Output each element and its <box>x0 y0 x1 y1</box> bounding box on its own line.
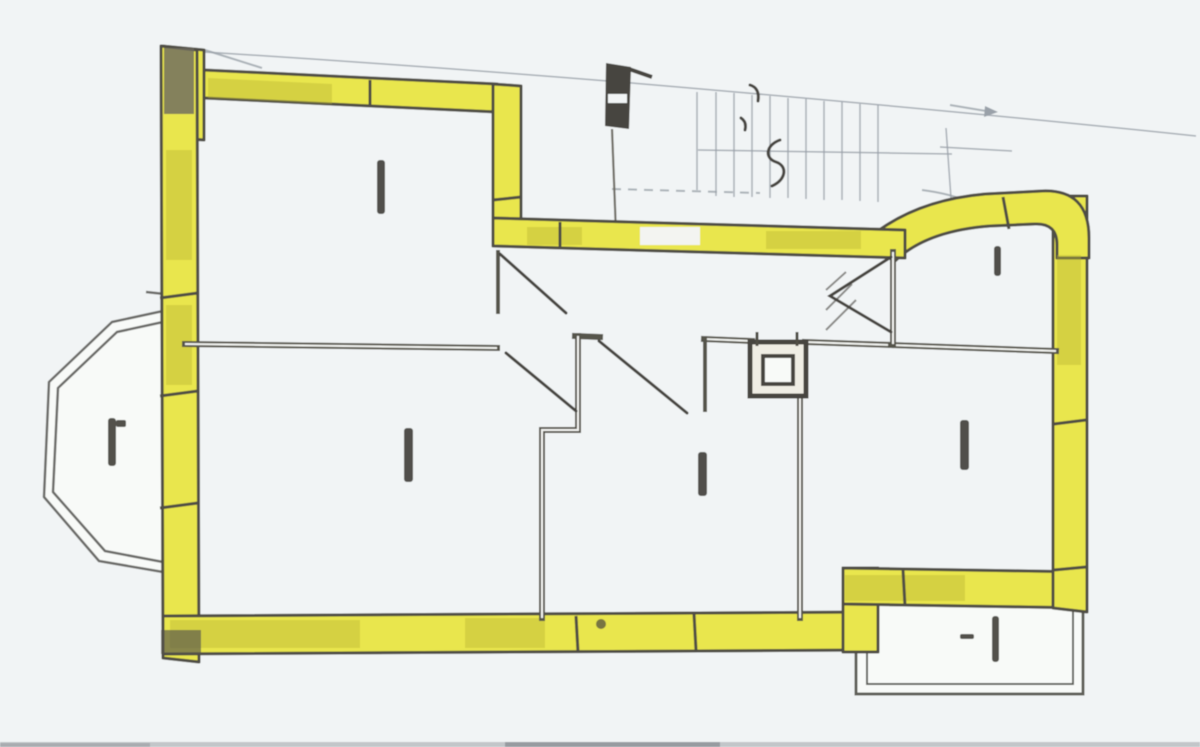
label-mark-balcony <box>992 616 999 662</box>
chimney-flue <box>750 332 806 396</box>
corner-dark-top-left <box>164 48 194 114</box>
label-mark-bay-2 <box>116 420 126 427</box>
label-mark-middle-left-room <box>404 428 413 482</box>
scan-edge <box>0 742 1200 747</box>
hallway-wall-opening <box>640 227 700 245</box>
scanned-floorplan-page <box>0 0 1200 747</box>
corner-dark-bottom-left <box>161 630 201 654</box>
label-mark-bay <box>108 418 116 466</box>
balcony-bottom-right <box>856 600 1083 694</box>
label-mark-right-room <box>960 420 969 470</box>
label-mark-top-left-room <box>377 160 385 214</box>
floorplan-drawing <box>0 0 1200 747</box>
label-mark-top-right-room <box>994 246 1001 276</box>
label-mark-center-room <box>698 452 707 496</box>
label-mark-balcony-2 <box>960 634 974 639</box>
